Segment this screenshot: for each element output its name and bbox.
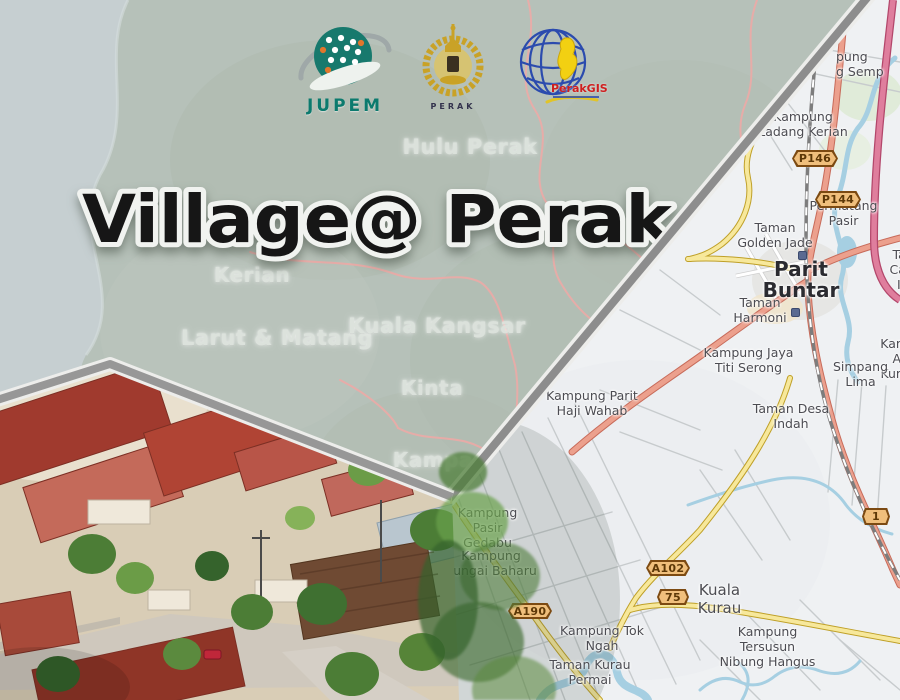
perak-crest-graphic (408, 20, 498, 100)
map-label-partial-kampung-semp: pung g Semp (836, 50, 900, 80)
perakgis-logo: PerakGIS (505, 20, 615, 115)
map-label-taman-golden-jade: Taman Golden Jade (710, 221, 840, 251)
jupem-logo-label: JUPEM (295, 96, 395, 116)
map-label-kampung-jaya-titi-serong: Kampung Jaya Titi Serong (676, 346, 821, 376)
district-label-hulu-perak: Hulu Perak (395, 135, 545, 159)
road-shield-P144: P144 (815, 191, 861, 208)
map-label-kampung-tok-ngah: Kampung Tok Ngah (536, 624, 668, 654)
road-shield-A190-text: A190 (510, 605, 550, 617)
perakgis-tagline-bar (553, 96, 599, 98)
road-shield-A190: A190 (508, 603, 552, 619)
road-shield-P146: P146 (792, 150, 838, 167)
map-label-taman-cahaya-intan: Taman Cahaya Intan (858, 248, 900, 292)
app-title: Village@ Perak (52, 158, 702, 287)
perak-crest-logo: PERAK (408, 20, 498, 111)
map-label-taman-kurau-permai: Taman Kurau Permai (524, 658, 656, 688)
road-shield-P146-text: P146 (794, 152, 836, 165)
district-label-kinta: Kinta (372, 376, 492, 400)
map-label-simpang-lima: Simpang Lima (818, 360, 900, 390)
map-label-taman-harmoni: Taman Harmoni (700, 296, 820, 326)
road-shield-A102: A102 (646, 560, 690, 576)
road-shield-A102-text: A102 (648, 562, 688, 574)
title-text-graphic: Village@ Perak (52, 158, 702, 283)
perakgis-globe-graphic (505, 20, 615, 115)
road-shield-75: 75 (657, 589, 689, 605)
road-shield-1: 1 (862, 508, 890, 525)
perak-crest-label: PERAK (408, 102, 498, 111)
map-label-kampung-parit-haji-wahab: Kampung Parit Haji Wahab (522, 389, 662, 419)
map-label-taman-desa-indah: Taman Desa Indah (726, 402, 856, 432)
road-shield-P144-text: P144 (817, 193, 859, 206)
village-perak-banner: Hulu Perak Kerian Larut & Matang Kuala K… (0, 0, 900, 700)
map-label-kuala-kurau: Kuala Kurau (677, 582, 762, 617)
district-label-kuala-kangsar: Kuala Kangsar (337, 314, 537, 338)
jupem-logo-graphic (295, 18, 395, 96)
road-shield-75-text: 75 (659, 591, 687, 603)
map-label-kampung-pasir-gedabu: Kampung Pasir Gedabu (440, 506, 535, 550)
road-shield-1-text: 1 (864, 510, 888, 523)
jupem-logo: JUPEM (295, 18, 395, 116)
title-text: Village@ Perak (82, 181, 674, 258)
map-label-kampung-tersusun-nibung-hangus: Kampung Tersusun Nibung Hangus (690, 625, 845, 669)
perakgis-logo-label: PerakGIS (551, 82, 608, 95)
